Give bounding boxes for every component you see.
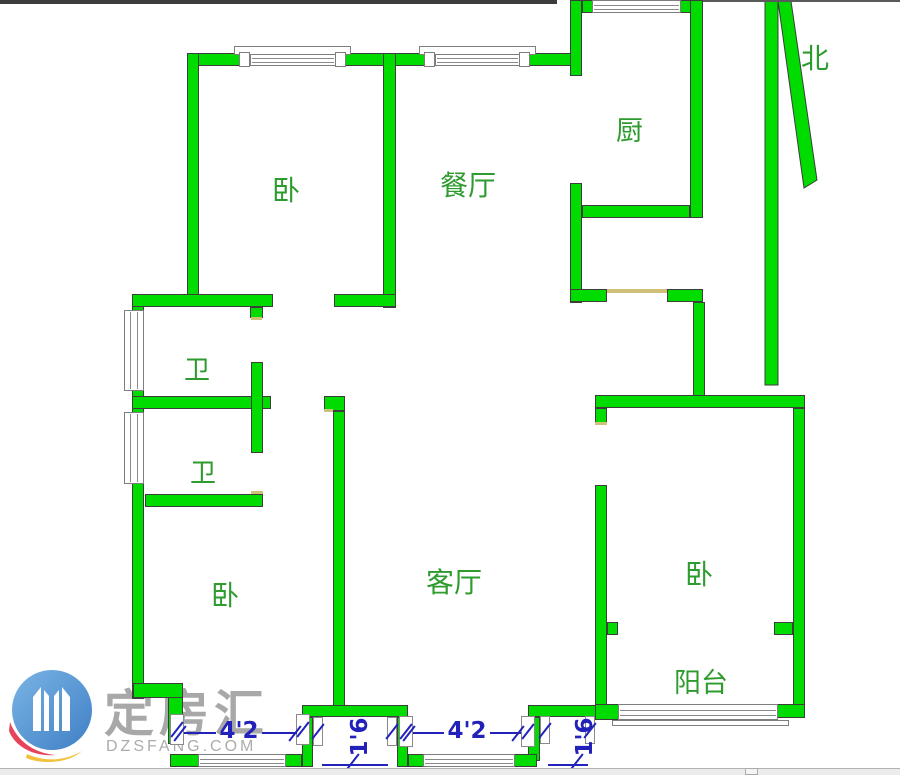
room-label-living: 客厅 — [426, 561, 482, 601]
wall — [334, 294, 396, 307]
room-label-bedroom-left: 卧 — [211, 574, 239, 614]
wall — [582, 205, 690, 218]
wall — [693, 302, 705, 396]
door-threshold — [324, 409, 333, 412]
window — [250, 54, 336, 66]
room-label-dining: 餐厅 — [440, 164, 496, 204]
wall — [667, 289, 703, 302]
compass-north-label: 北 — [801, 37, 829, 77]
door-threshold — [607, 289, 667, 293]
wall — [132, 294, 273, 307]
window — [124, 412, 144, 484]
wall — [595, 408, 607, 423]
room-label-bedroom-top: 卧 — [272, 169, 300, 209]
window — [198, 754, 286, 767]
wall — [595, 704, 619, 720]
wall — [285, 754, 302, 767]
window-top-border — [0, 0, 557, 4]
wall — [145, 494, 263, 507]
dimension-line — [548, 764, 588, 766]
wall — [595, 485, 607, 714]
window-top-border-right — [703, 0, 900, 2]
dimension-label: 4'2 — [216, 718, 262, 744]
wall — [408, 754, 424, 767]
wall — [333, 411, 345, 706]
watermark-logo-icon — [7, 667, 99, 763]
room-label-bathroom-upper: 卫 — [184, 350, 210, 387]
room-label-bathroom-lower: 卫 — [190, 453, 216, 490]
wall — [774, 622, 793, 635]
window — [124, 310, 144, 391]
wall — [251, 362, 263, 453]
wall — [777, 704, 805, 718]
door-jamb — [313, 717, 323, 746]
wall — [187, 53, 199, 296]
dimension-line — [322, 764, 388, 766]
window — [423, 754, 515, 767]
dimension-label: 4'2 — [444, 718, 490, 744]
door-threshold — [595, 422, 607, 425]
window-bottom-border — [0, 768, 900, 775]
dimension-line — [262, 732, 297, 734]
room-label-bedroom-right: 卧 — [685, 553, 713, 593]
wall — [607, 622, 618, 635]
wall — [570, 0, 582, 76]
scrollbar-thumb[interactable] — [745, 768, 758, 775]
wall — [514, 754, 537, 767]
wall — [133, 683, 183, 698]
window — [618, 704, 778, 720]
window-jamb — [519, 52, 530, 67]
wall — [690, 0, 703, 218]
wall — [595, 395, 805, 408]
window-jamb — [335, 52, 346, 67]
dimension-label: 1'6 — [572, 713, 598, 761]
door-threshold — [251, 317, 262, 320]
wall — [570, 289, 607, 302]
door-jamb — [540, 716, 550, 744]
wall — [132, 483, 144, 699]
dimension-line — [413, 732, 444, 734]
window — [435, 54, 520, 66]
dimension-label: 1'6 — [347, 713, 373, 761]
window-sill — [612, 720, 789, 726]
window-jamb — [424, 52, 435, 67]
door-jamb — [521, 716, 535, 747]
room-label-balcony: 阳台 — [674, 661, 728, 700]
door-jamb — [387, 717, 397, 746]
wall — [170, 754, 199, 767]
dimension-line — [184, 732, 216, 734]
wall — [383, 53, 396, 308]
floor-plan-canvas: 定房汇 DZSFANG.COM — [0, 0, 900, 775]
wall — [570, 183, 582, 303]
window — [592, 0, 681, 13]
wall — [793, 408, 805, 717]
room-label-kitchen: 厨 — [616, 109, 643, 148]
door-threshold — [251, 491, 263, 494]
window-jamb — [239, 52, 250, 67]
